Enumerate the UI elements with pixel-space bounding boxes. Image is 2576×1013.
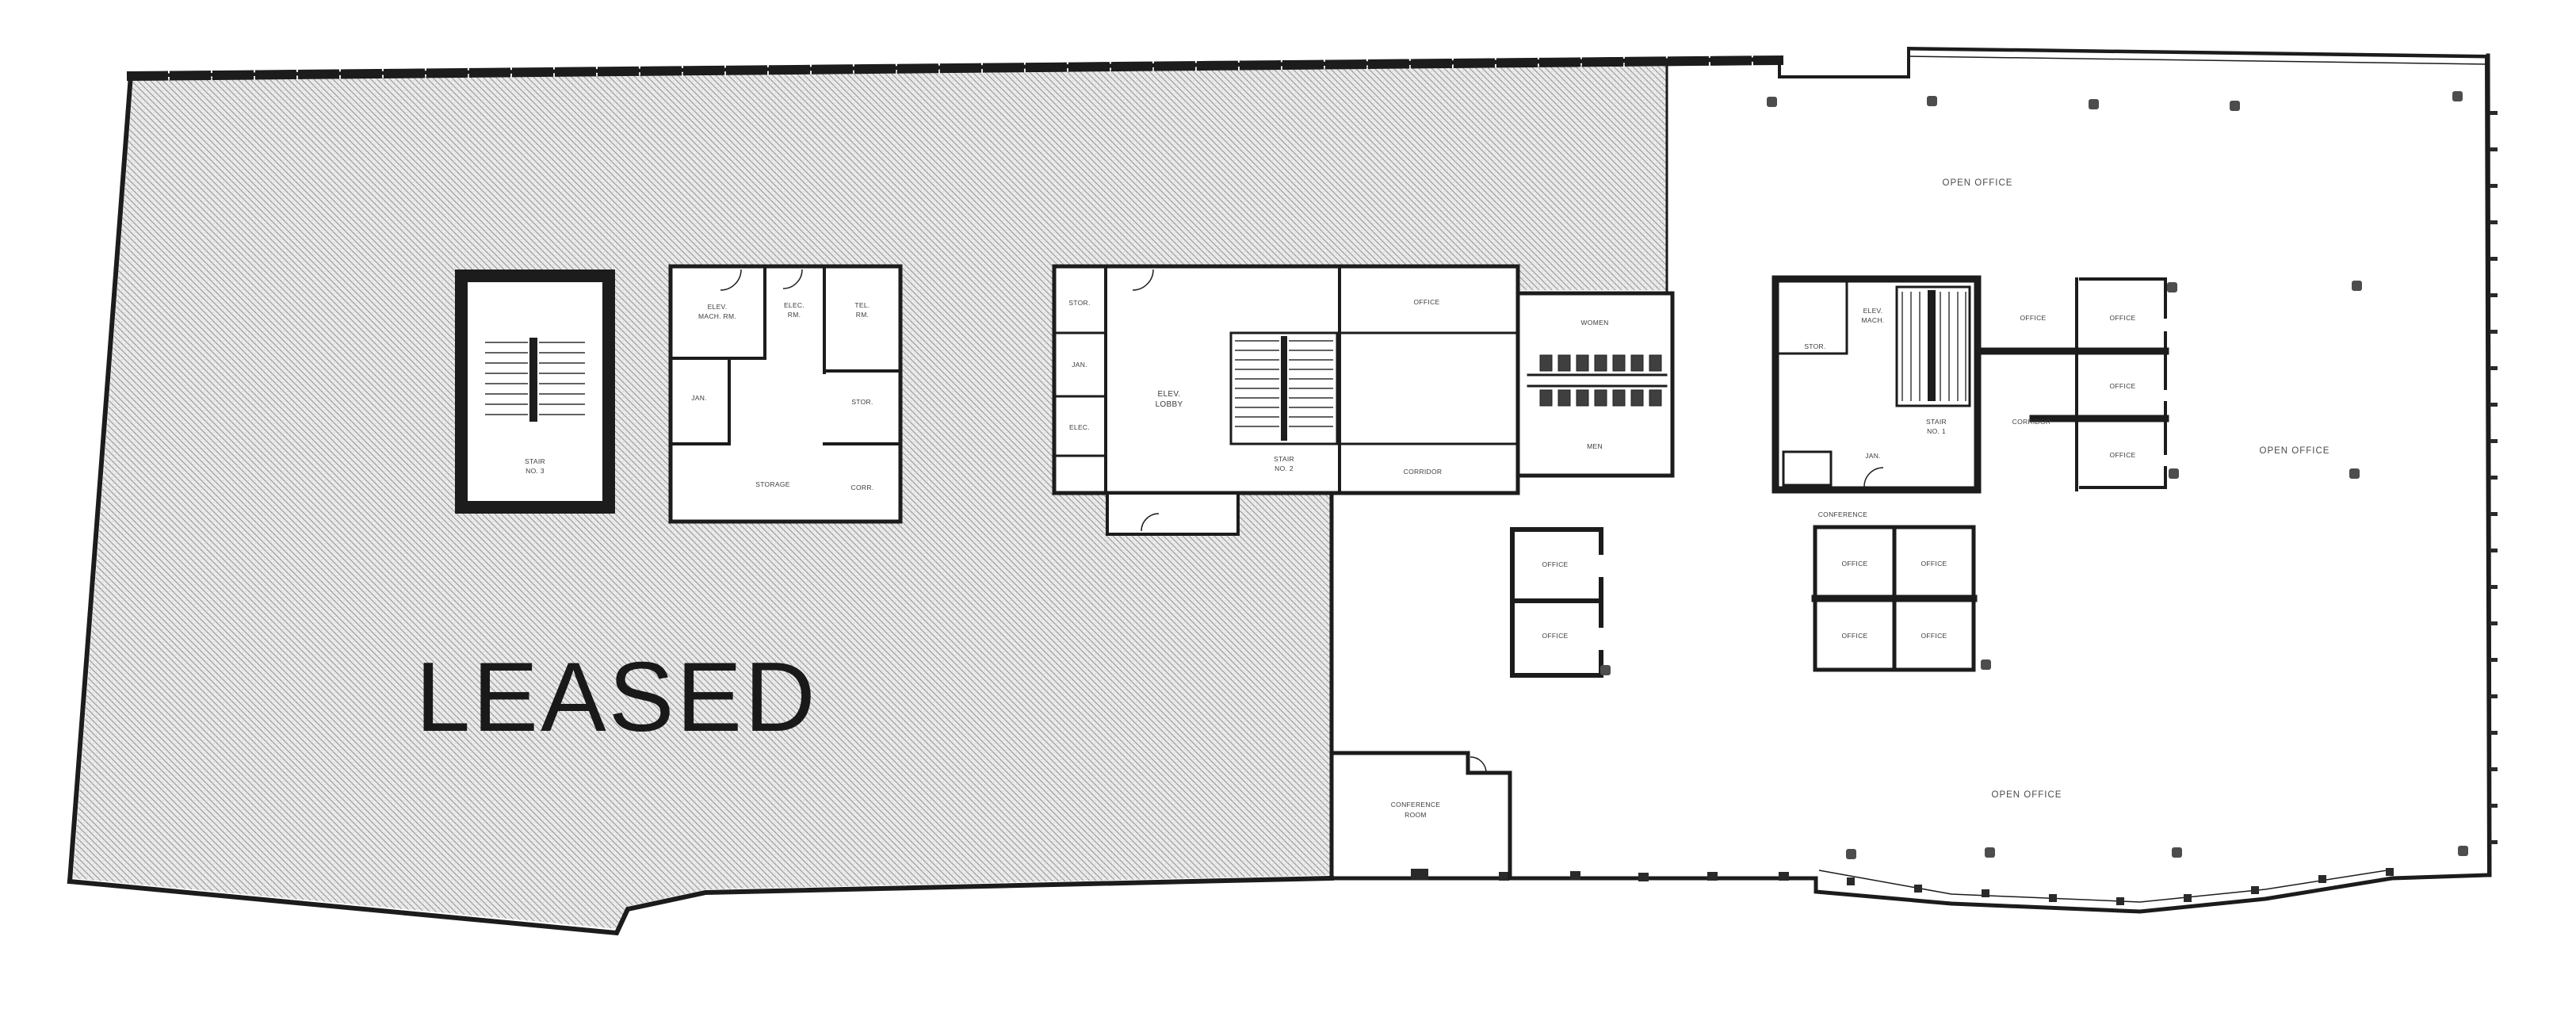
top-right-window-wall-inner (1909, 56, 2486, 64)
office-pod-quad: OFFICE OFFICE OFFICE OFFICE (1815, 527, 1974, 670)
toilet-fixture (1540, 390, 1552, 406)
room-label: MACH. (1862, 316, 1885, 324)
window-tick (2490, 330, 2498, 334)
right-wall-window-ticks (2490, 111, 2498, 844)
stair-1-label-line2: NO. 1 (1927, 427, 1946, 435)
toilet-fixture (1649, 390, 1661, 406)
office-label: OFFICE (1842, 632, 1868, 640)
room-label: STOR. (851, 398, 873, 406)
toilet-fixture (1577, 390, 1588, 406)
bottom-conference-room: CONFERENCE ROOM (1333, 753, 1510, 880)
stair-2-divider (1281, 336, 1287, 441)
stairwell-3-block: STAIR NO. 3 (461, 276, 609, 507)
pod-door-gap (1598, 628, 1604, 650)
room-label: ELEV. (708, 303, 728, 311)
corridor-label: CORRIDOR (2012, 418, 2051, 426)
room-label: RM. (788, 311, 801, 319)
office-label: OFFICE (1542, 560, 1569, 568)
room-label: STOR. (1804, 342, 1825, 350)
room-label: JAN. (691, 394, 707, 402)
toilet-fixture (1613, 355, 1625, 371)
wall-post (1499, 872, 1509, 881)
window-tick (2490, 111, 2498, 115)
column-dot (1981, 659, 1991, 670)
wall-post (1982, 889, 1989, 897)
conference-room-label-line2: ROOM (1405, 811, 1427, 819)
window-tick (2490, 220, 2498, 224)
wall-post (1638, 873, 1649, 881)
column-dot (2089, 99, 2099, 109)
wall-post (2386, 868, 2394, 876)
column-dot (1985, 847, 1995, 858)
window-tick (2490, 585, 2498, 589)
toilet-fixture (1540, 355, 1552, 371)
toilet-fixture (1613, 390, 1625, 406)
window-tick (2490, 731, 2498, 735)
column-dot (2352, 281, 2362, 291)
open-office-label-lower: OPEN OFFICE (1992, 790, 2062, 800)
wall-post (1707, 872, 1718, 881)
elevator-lobby-label-line1: ELEV. (1158, 390, 1181, 399)
wall-post (1570, 871, 1580, 880)
office-label: OFFICE (1542, 632, 1569, 640)
office-label: OFFICE (1921, 560, 1947, 568)
office-column: OFFICE CORRIDOR OFFICE OFFICE OFFICE (1979, 279, 2165, 490)
window-tick (2490, 767, 2498, 771)
room-label: CORR. (851, 484, 874, 491)
wall-post (1779, 872, 1789, 881)
conference-room-column (1411, 869, 1428, 880)
stair-1-divider (1928, 290, 1936, 401)
office-label: OFFICE (2110, 314, 2136, 322)
office-label: OFFICE (1921, 632, 1947, 640)
office-label: OFFICE (2110, 451, 2136, 459)
window-tick (2490, 621, 2498, 625)
column-dot (2167, 282, 2177, 292)
room-label: RM. (856, 311, 869, 319)
stair-3-label-line1: STAIR (525, 457, 545, 465)
window-tick (2490, 147, 2498, 151)
restroom-block: WOMEN MEN (1518, 293, 1672, 476)
floor-plan-image: LEASED STAIR NO. 3 ELEV. MACH (0, 0, 2576, 1013)
bottom-right-window-wall-inner (1819, 870, 2392, 902)
room-label: TEL. (854, 301, 869, 309)
door-arc (1470, 757, 1486, 773)
window-tick (2490, 476, 2498, 480)
womens-room-label: WOMEN (1580, 319, 1608, 327)
toilet-fixture (1595, 355, 1607, 371)
wall-post (2251, 886, 2259, 894)
conference-room-label-line1: CONFERENCE (1391, 801, 1441, 808)
stair-1-label-line1: STAIR (1926, 418, 1947, 426)
room-label: CONFERENCE (1818, 510, 1868, 518)
room-label: ELEV. (1863, 307, 1883, 315)
room-label: STOR. (1068, 299, 1090, 307)
stair-2-label-line2: NO. 2 (1275, 464, 1294, 472)
window-tick (2490, 549, 2498, 552)
wall-post (1914, 885, 1922, 893)
open-office-label-upper: OPEN OFFICE (1943, 178, 2013, 188)
column-dot (2172, 847, 2182, 858)
room-label: JAN. (1865, 452, 1881, 460)
column-dot (2169, 468, 2179, 479)
column-dot (1927, 96, 1937, 106)
window-tick (2490, 804, 2498, 808)
office-label: OFFICE (1842, 560, 1868, 568)
toilet-fixture (1631, 390, 1643, 406)
room-label: STORAGE (755, 480, 790, 488)
window-tick (2490, 257, 2498, 261)
stair-2-label-line1: STAIR (1274, 455, 1294, 463)
window-tick (2490, 403, 2498, 407)
mens-room-label: MEN (1587, 442, 1603, 450)
bottom-right-window-wall (1816, 875, 2489, 912)
stair-3-divider (529, 338, 537, 422)
room-label: ELEC. (1069, 423, 1090, 431)
office-pod-stack: OFFICE OFFICE (1512, 529, 1604, 675)
toilet-fixture (1595, 390, 1607, 406)
column-dot (2452, 91, 2463, 101)
wall-post (1847, 877, 1855, 885)
right-wall (2488, 55, 2490, 875)
wall-post (2049, 894, 2057, 902)
window-tick (2490, 293, 2498, 297)
toilet-fixture (1558, 390, 1570, 406)
top-right-window-wall (1909, 49, 2486, 57)
office-label: OFFICE (2020, 314, 2047, 322)
floor-plan-page: LEASED STAIR NO. 3 ELEV. MACH (0, 0, 2576, 1013)
stair-3-label-line2: NO. 3 (526, 467, 545, 475)
window-tick (2490, 366, 2498, 370)
room-label: OFFICE (1414, 298, 1440, 306)
leased-label: LEASED (415, 643, 817, 752)
service-block: ELEV. MACH. RM. ELEC. RM. TEL. RM. STOR.… (671, 266, 900, 522)
toilet-fixture (1649, 355, 1661, 371)
open-office-label-right: OPEN OFFICE (2260, 446, 2330, 456)
wall-post (2116, 897, 2124, 905)
column-dot (2349, 468, 2360, 479)
office-label: OFFICE (2110, 382, 2136, 390)
column-dot (1600, 665, 1611, 675)
column-dot (2230, 101, 2240, 111)
column-dot (2458, 846, 2468, 856)
window-tick (2490, 658, 2498, 662)
central-core-block: STOR. JAN. ELEC. ELEV. LOBBY STAIR NO. 2… (1054, 266, 1518, 534)
core-vestibule (1107, 493, 1238, 534)
pod-door-gap (1598, 555, 1604, 577)
toilet-fixture (1558, 355, 1570, 371)
elevator-lobby-label-line2: LOBBY (1156, 400, 1183, 409)
column-dot (1767, 97, 1777, 107)
structural-columns (1600, 91, 2468, 859)
room-label: CORRIDOR (1404, 468, 1443, 476)
window-tick (2490, 439, 2498, 443)
wall-post (2318, 875, 2326, 883)
room-label: MACH. RM. (698, 312, 736, 320)
column-dot (1846, 849, 1856, 859)
room-label: ELEC. (784, 301, 805, 309)
room-label: JAN. (1072, 361, 1087, 369)
toilet-fixture (1577, 355, 1588, 371)
stairwell-1-block: STOR. ELEV. MACH. JAN. STAIR NO. 1 CONFE… (1775, 279, 1978, 518)
toilet-fixture (1631, 355, 1643, 371)
window-tick (2490, 512, 2498, 516)
window-tick (2490, 184, 2498, 188)
window-tick (2490, 840, 2498, 844)
window-tick (2490, 694, 2498, 698)
wall-post (2184, 894, 2192, 902)
